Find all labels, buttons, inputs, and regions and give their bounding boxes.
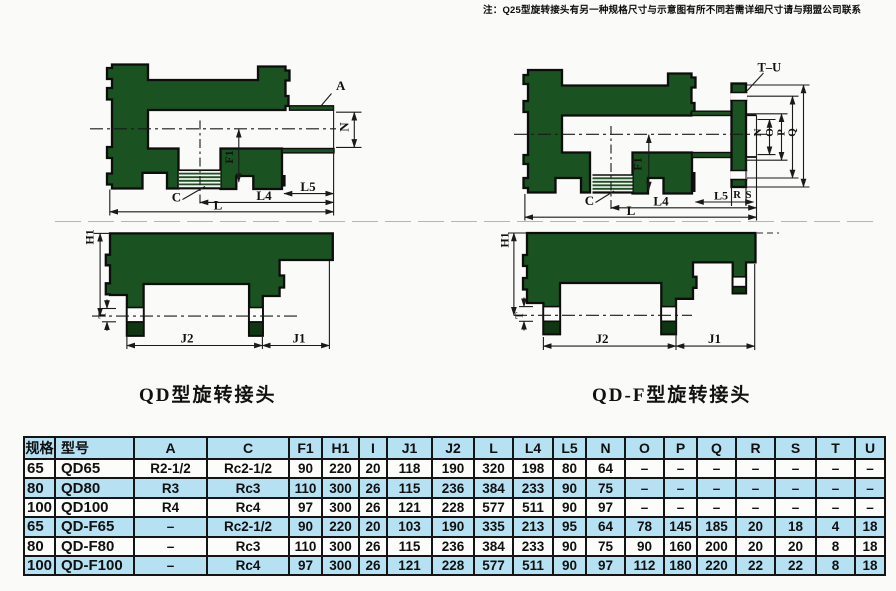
- svg-text:T–U: T–U: [758, 61, 782, 75]
- svg-text:R: R: [733, 190, 741, 201]
- svg-text:F1: F1: [631, 157, 645, 170]
- svg-text:L5: L5: [300, 179, 316, 194]
- svg-text:N: N: [337, 122, 352, 132]
- svg-text:J1: J1: [293, 331, 306, 346]
- svg-text:C: C: [585, 193, 594, 208]
- svg-text:J2: J2: [181, 331, 194, 346]
- svg-text:H1: H1: [498, 232, 512, 247]
- svg-text:S: S: [746, 190, 752, 201]
- svg-text:F1: F1: [222, 150, 236, 163]
- svg-text:H1: H1: [83, 229, 97, 244]
- svg-text:T: T: [98, 312, 109, 319]
- svg-text:L: L: [214, 198, 223, 213]
- svg-text:A: A: [336, 78, 346, 93]
- svg-text:O: O: [764, 128, 776, 137]
- svg-text:L5: L5: [714, 189, 728, 203]
- svg-text:Q: Q: [787, 128, 799, 137]
- svg-text:T: T: [515, 312, 526, 319]
- svg-text:J2: J2: [596, 331, 609, 346]
- svg-text:J1: J1: [708, 331, 721, 346]
- svg-text:N: N: [752, 128, 764, 136]
- svg-text:C: C: [172, 190, 181, 205]
- svg-text:L4: L4: [653, 194, 669, 209]
- svg-text:L: L: [627, 203, 636, 218]
- svg-text:L4: L4: [256, 188, 272, 203]
